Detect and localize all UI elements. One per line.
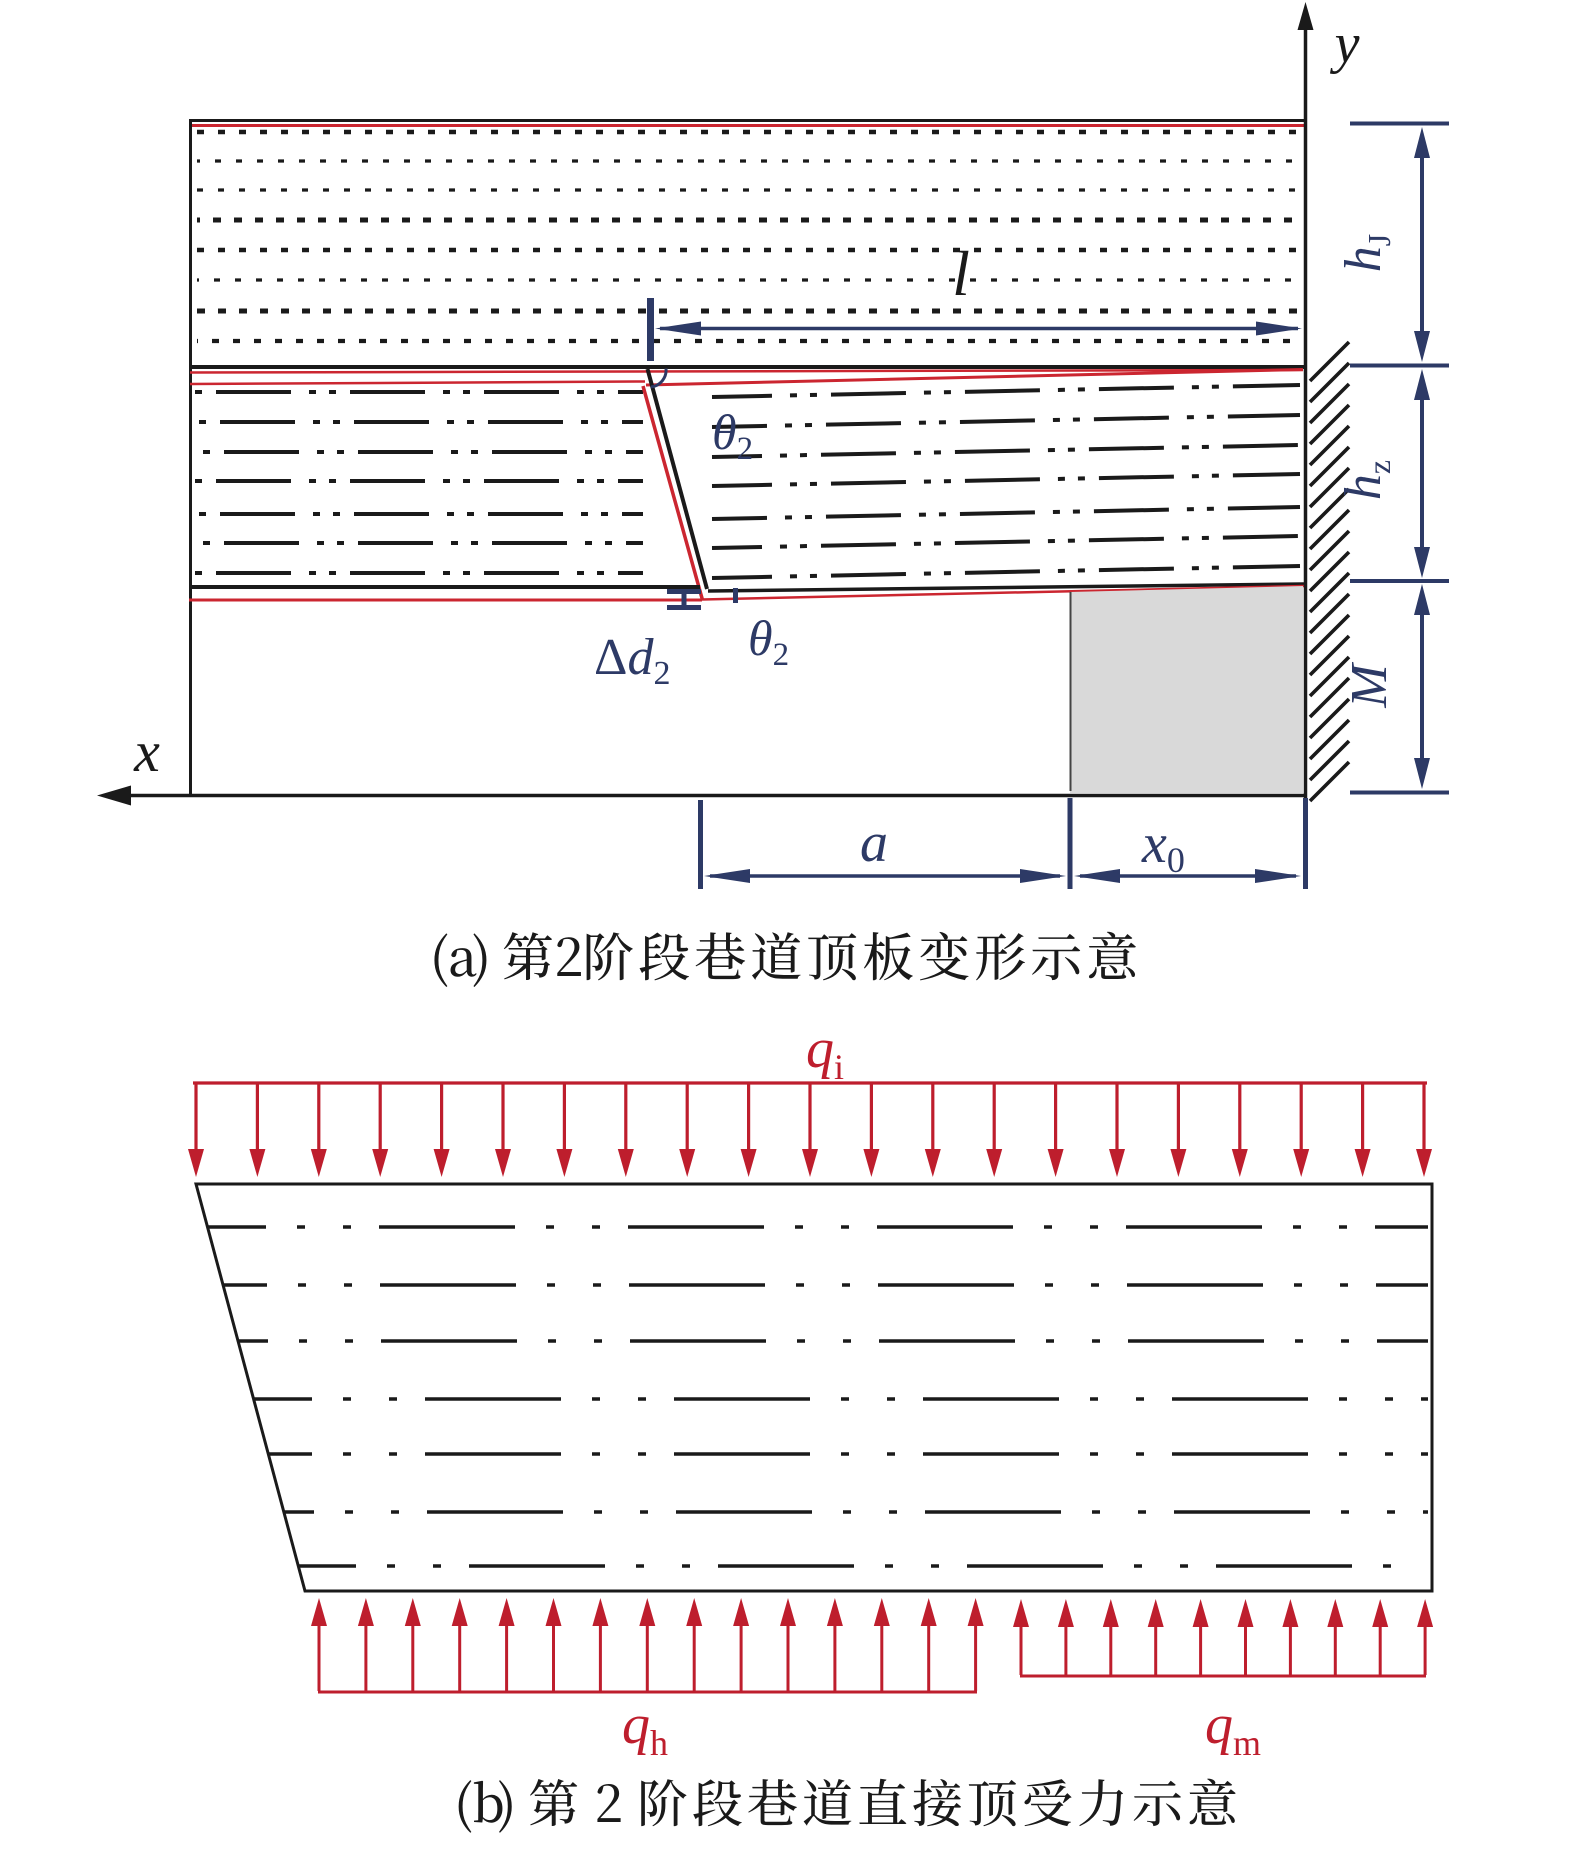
svg-text:a: a (860, 812, 888, 874)
svg-text:y: y (1330, 13, 1360, 75)
svg-text:x: x (133, 719, 160, 784)
svg-text:M: M (1341, 662, 1398, 709)
svg-text:l: l (952, 238, 970, 309)
